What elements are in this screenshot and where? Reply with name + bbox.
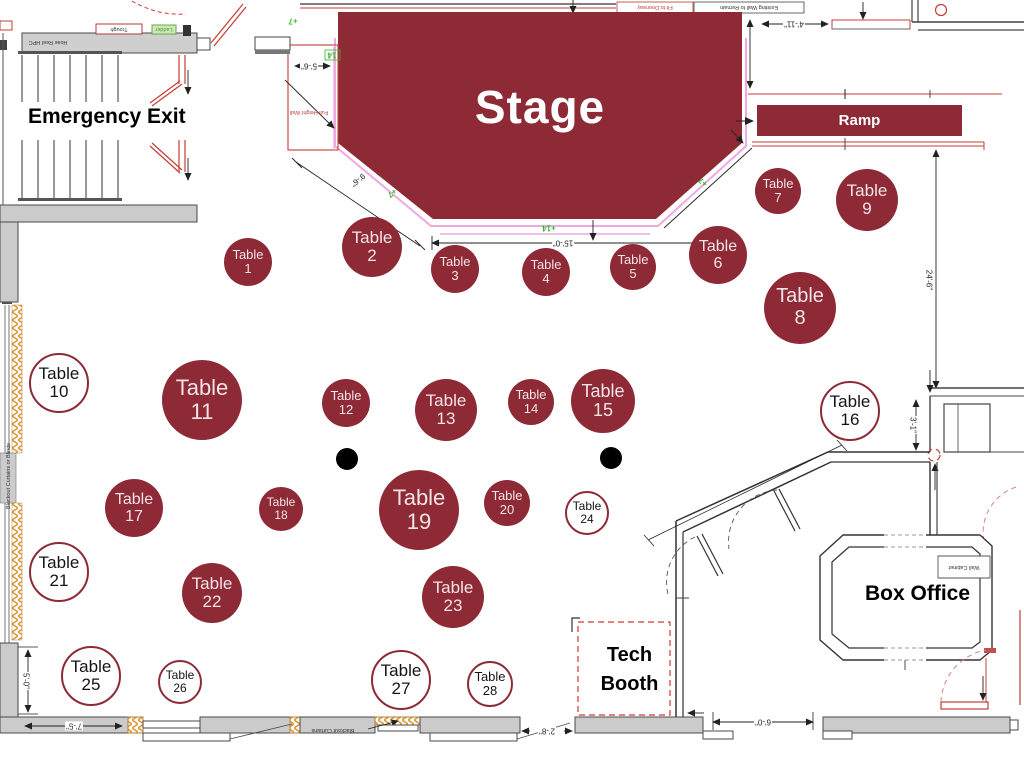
ramp: Ramp [757, 105, 962, 136]
table-word: Table [433, 579, 474, 597]
table-number: 10 [50, 383, 69, 401]
table-word: Table [699, 238, 737, 255]
table-number: 7 [774, 191, 781, 205]
table-word: Table [176, 376, 229, 400]
table-number: 15 [593, 401, 613, 420]
dimension-label: 6'-0" [754, 718, 772, 727]
table-word: Table [352, 229, 393, 247]
table-circle-8[interactable]: Table8 [764, 272, 836, 344]
dimension-label: 2'-8" [538, 727, 556, 736]
box-office-label: Box Office [865, 582, 970, 606]
table-word: Table [115, 491, 153, 508]
table-circle-10[interactable]: Table10 [29, 353, 89, 413]
table-circle-4[interactable]: Table4 [522, 248, 570, 296]
table-number: 9 [862, 200, 871, 218]
table-word: Table [439, 255, 470, 269]
table-circle-17[interactable]: Table17 [105, 479, 163, 537]
table-number: 28 [483, 684, 497, 698]
annotation-label: Fit to Doorway [637, 4, 672, 10]
table-word: Table [232, 248, 263, 262]
tech-booth-label-line1: Tech [582, 641, 677, 670]
ramp-label: Ramp [839, 112, 881, 129]
table-circle-12[interactable]: Table12 [322, 379, 370, 427]
table-word: Table [617, 253, 648, 267]
annotation-label: Trough [110, 26, 127, 32]
table-circle-6[interactable]: Table6 [689, 226, 747, 284]
table-number: 19 [407, 510, 431, 534]
table-number: 14 [524, 402, 538, 416]
stage-label: Stage [440, 80, 640, 134]
table-number: 24 [580, 513, 593, 526]
table-number: 2 [367, 247, 376, 265]
table-word: Table [381, 662, 422, 680]
table-number: 11 [191, 400, 214, 424]
table-word: Table [39, 365, 80, 383]
table-circle-25[interactable]: Table25 [61, 646, 121, 706]
table-circle-18[interactable]: Table18 [259, 487, 303, 531]
table-word: Table [192, 575, 233, 593]
table-number: 20 [500, 503, 514, 517]
annotation-label: Ladder [155, 26, 172, 32]
dimension-label: 15'-0" [552, 239, 574, 248]
table-word: Table [581, 382, 624, 401]
table-number: 18 [274, 509, 287, 522]
tech-booth-label: Tech Booth [582, 641, 677, 699]
table-number: 22 [203, 593, 222, 611]
table-word: Table [330, 389, 361, 403]
table-circle-2[interactable]: Table2 [342, 217, 402, 277]
table-number: 5 [629, 267, 636, 281]
table-word: Table [426, 392, 467, 410]
dimension-label: 14 [327, 51, 338, 60]
table-number: 26 [173, 682, 186, 695]
table-circle-7[interactable]: Table7 [755, 168, 801, 214]
table-word: Table [830, 393, 871, 411]
table-circle-28[interactable]: Table28 [467, 661, 513, 707]
table-circle-11[interactable]: Table11 [162, 360, 242, 440]
table-number: 21 [50, 572, 69, 590]
table-word: Table [39, 554, 80, 572]
table-number: 25 [82, 676, 101, 694]
dimension-label: 24'-6" [925, 269, 934, 291]
table-word: Table [847, 182, 888, 200]
table-number: 8 [794, 308, 805, 330]
table-circle-1[interactable]: Table1 [224, 238, 272, 286]
dimension-label: 5'-6" [300, 62, 318, 71]
tech-booth-label-line2: Booth [582, 670, 677, 699]
table-word: Table [474, 670, 505, 684]
table-number: 13 [437, 410, 456, 428]
table-number: 17 [125, 508, 143, 525]
column-dot [600, 447, 622, 469]
table-circle-26[interactable]: Table26 [158, 660, 202, 704]
table-word: Table [491, 489, 522, 503]
table-circle-21[interactable]: Table21 [29, 542, 89, 602]
column-dot [336, 448, 358, 470]
table-number: 4 [542, 272, 549, 286]
table-number: 16 [841, 411, 860, 429]
table-word: Table [776, 286, 824, 308]
table-number: 6 [714, 255, 723, 272]
table-circle-16[interactable]: Table16 [820, 381, 880, 441]
table-circle-27[interactable]: Table27 [371, 650, 431, 710]
emergency-exit-label: Emergency Exit [28, 105, 186, 129]
table-circle-3[interactable]: Table3 [431, 245, 479, 293]
dimension-label: +14 [541, 224, 557, 233]
table-word: Table [530, 258, 561, 272]
table-circle-15[interactable]: Table15 [571, 369, 635, 433]
dimension-label: 7'-5" [65, 722, 83, 731]
table-number: 1 [244, 262, 251, 276]
annotation-label: Hose Reel HPC [29, 39, 68, 45]
annotation-label: Blackout Curtains [311, 727, 354, 733]
table-number: 3 [451, 269, 458, 283]
table-circle-24[interactable]: Table24 [565, 491, 609, 535]
dimension-label: +7 [287, 17, 298, 26]
table-circle-22[interactable]: Table22 [182, 563, 242, 623]
table-circle-13[interactable]: Table13 [415, 379, 477, 441]
dimension-label: 4'-11" [783, 20, 805, 29]
annotation-label: Full Height Wall [290, 109, 328, 115]
annotation-label: Blackout Curtains or Blinds [6, 443, 12, 509]
table-number: 27 [392, 680, 411, 698]
annotation-label: Existing Wall to Remain [720, 4, 778, 10]
table-circle-5[interactable]: Table5 [610, 244, 656, 290]
table-circle-14[interactable]: Table14 [508, 379, 554, 425]
table-word: Table [515, 388, 546, 402]
table-circle-19[interactable]: Table19 [379, 470, 459, 550]
table-number: 12 [339, 403, 353, 417]
dimension-label: 3'-1" [909, 416, 918, 434]
table-word: Table [71, 658, 112, 676]
table-circle-9[interactable]: Table9 [836, 169, 898, 231]
annotation-label: Wall Cabinet [949, 564, 980, 570]
table-word: Table [393, 486, 446, 510]
table-circle-20[interactable]: Table20 [484, 480, 530, 526]
table-number: 23 [444, 597, 463, 615]
dimension-label: 5'-0" [22, 672, 31, 690]
right-window-wall [916, 370, 1024, 490]
table-word: Table [762, 177, 793, 191]
table-circle-23[interactable]: Table23 [422, 566, 484, 628]
floor-plan-canvas: Stage Ramp Emergency Exit Box Office Tec… [0, 0, 1024, 759]
